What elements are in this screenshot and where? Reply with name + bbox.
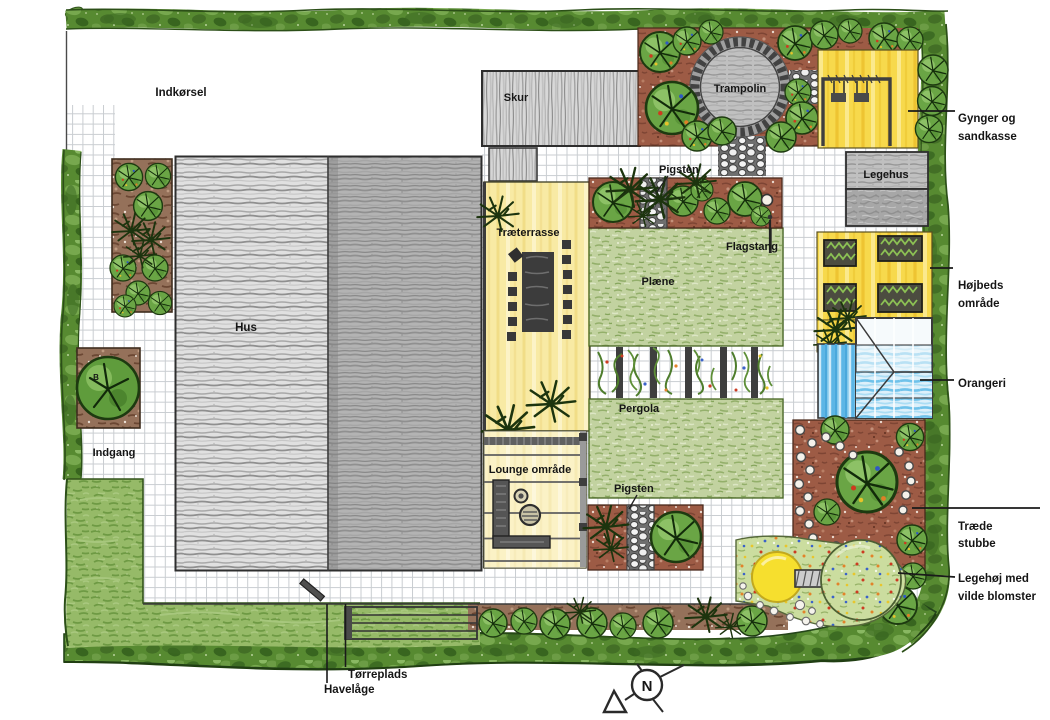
svg-text:Højbeds: Højbeds [958,280,1003,292]
svg-text:stubbe: stubbe [958,538,996,550]
svg-text:Hus: Hus [235,322,257,334]
svg-text:B: B [93,373,99,382]
svg-text:Pigsten: Pigsten [659,164,699,176]
svg-text:Legehus: Legehus [863,169,908,181]
svg-text:Træde: Træde [958,521,993,533]
svg-text:område: område [958,298,1000,310]
svg-text:Indgang: Indgang [93,447,136,459]
svg-text:Havelåge: Havelåge [324,684,375,696]
svg-text:Træterrasse: Træterrasse [497,227,560,239]
svg-text:Lounge område: Lounge område [489,464,572,476]
svg-text:Flagstang: Flagstang [726,241,778,253]
svg-text:Legehøj med: Legehøj med [958,573,1029,585]
svg-text:Orangeri: Orangeri [958,378,1006,390]
svg-text:Pergola: Pergola [619,403,660,415]
svg-text:Pigsten: Pigsten [614,483,654,495]
svg-text:N: N [642,678,653,695]
svg-text:Trampolin: Trampolin [714,83,767,95]
svg-text:Tørreplads: Tørreplads [348,669,407,681]
svg-text:vilde blomster: vilde blomster [958,591,1036,603]
svg-text:Plæne: Plæne [641,276,674,288]
svg-text:Skur: Skur [504,92,529,104]
svg-text:Indkørsel: Indkørsel [155,87,206,99]
svg-text:sandkasse: sandkasse [958,131,1017,143]
svg-text:Gynger og: Gynger og [958,113,1016,125]
